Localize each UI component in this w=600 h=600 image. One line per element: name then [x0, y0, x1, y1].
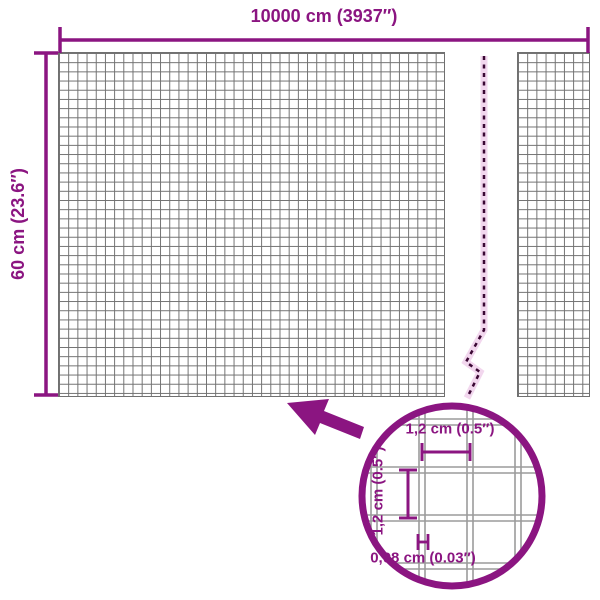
arrow-up-left-icon [287, 399, 364, 439]
mesh-width-label: 1,2 cm (0.5″) [406, 422, 495, 437]
height-dimension-line [34, 53, 58, 395]
diagram-overlay [0, 0, 600, 600]
height-dimension-label: 60 cm (23.6″) [9, 168, 27, 280]
width-dimension-line [60, 27, 588, 53]
break-dashed-line [466, 56, 484, 398]
mesh-height-label: 1,2 cm (0.5″) [371, 447, 386, 536]
dimension-diagram: 10000 cm (3937″) 60 cm (23.6″) 1,2 cm (0… [0, 0, 600, 600]
width-dimension-label: 10000 cm (3937″) [251, 7, 398, 25]
wire-thickness-label: 0,08 cm (0.03″) [370, 551, 476, 566]
